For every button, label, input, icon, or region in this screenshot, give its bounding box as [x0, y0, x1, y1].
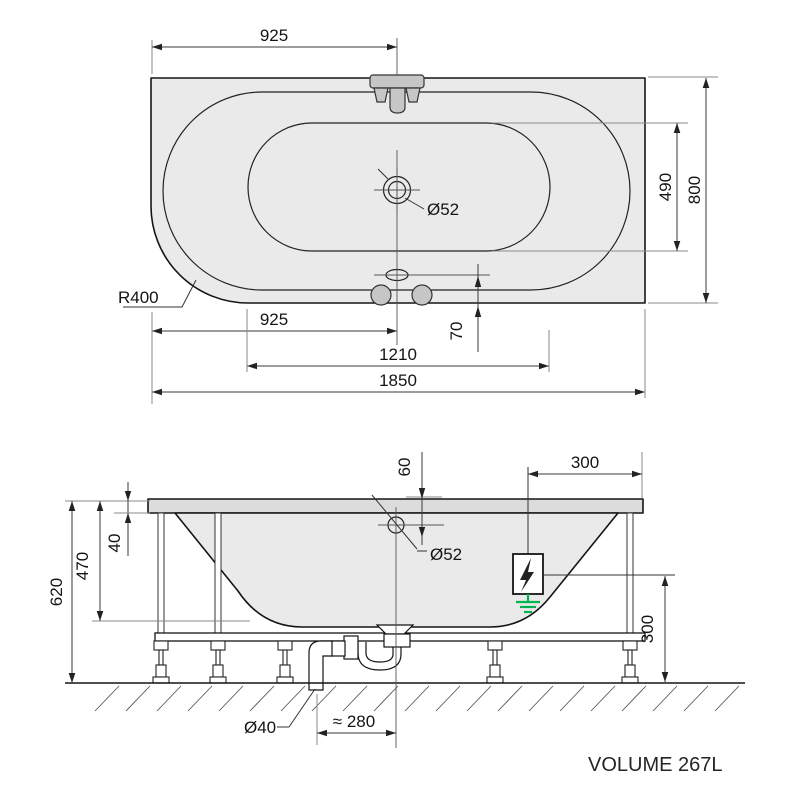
fitting-circle-left [371, 285, 391, 305]
svg-text:300: 300 [571, 453, 599, 472]
dim-trap-offset: ≈ 280 [317, 694, 396, 745]
pipe-diameter-label: Ø40 [244, 689, 315, 737]
svg-text:40: 40 [105, 534, 124, 553]
svg-text:60: 60 [395, 458, 414, 477]
svg-text:620: 620 [47, 578, 66, 606]
dim-rim-height: 40 [105, 482, 150, 556]
dim-total-height: 620 [47, 501, 150, 683]
svg-text:925: 925 [260, 26, 288, 45]
horizontal-pipe [331, 641, 345, 656]
trap-hub [384, 634, 410, 647]
dim-faucet-offset: 925 [152, 26, 397, 74]
rim-slab [148, 499, 643, 513]
dim-frame-inset: 300 [528, 452, 642, 498]
svg-text:70: 70 [447, 322, 466, 341]
dim-basin-length: 1210 [247, 345, 549, 366]
side-view: Ø52 60 300 [47, 452, 745, 748]
svg-text:470: 470 [73, 552, 92, 580]
frame-post [158, 513, 164, 634]
dim-frame-height: 300 [638, 576, 665, 682]
floor-hatching [95, 686, 739, 711]
faucet-deck-plate [370, 75, 424, 88]
top-view: Ø52 925 490 800 [118, 26, 718, 404]
faucet-spout [390, 88, 405, 113]
frame-post [215, 513, 221, 634]
svg-text:300: 300 [638, 615, 657, 643]
overflow-diameter-label: Ø52 [430, 545, 462, 564]
bathtub-technical-drawing: Ø52 925 490 800 [0, 0, 800, 800]
tub-body [175, 513, 618, 627]
svg-text:R400: R400 [118, 288, 159, 307]
union-nut [344, 636, 358, 659]
svg-text:490: 490 [656, 173, 675, 201]
frame-post [627, 513, 633, 634]
svg-text:≈ 280: ≈ 280 [333, 712, 375, 731]
svg-text:800: 800 [685, 176, 704, 204]
drain-diameter-label: Ø52 [427, 200, 459, 219]
dim-overall-length: 1850 [152, 371, 645, 392]
svg-text:Ø40: Ø40 [244, 718, 276, 737]
svg-text:925: 925 [260, 310, 288, 329]
svg-text:1210: 1210 [379, 345, 417, 364]
corner-radius-label: R400 [118, 280, 196, 307]
faucet-handle-right [406, 88, 420, 102]
faucet-handle-left [374, 88, 388, 102]
dim-drain-offset: 925 [152, 310, 397, 331]
svg-text:1850: 1850 [379, 371, 417, 390]
fitting-circle-right [412, 285, 432, 305]
volume-label: VOLUME 267L [588, 754, 723, 776]
